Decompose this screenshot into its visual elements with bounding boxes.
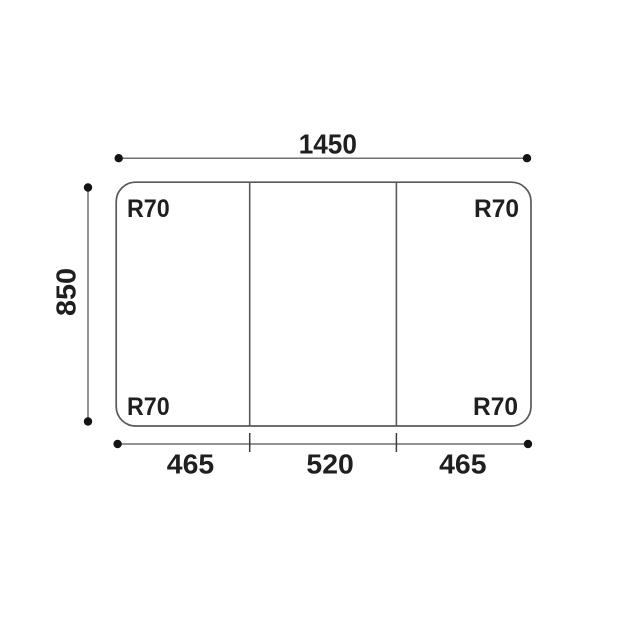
svg-text:465: 465 <box>167 448 214 479</box>
svg-text:465: 465 <box>439 448 486 479</box>
svg-text:R70: R70 <box>474 195 519 223</box>
svg-text:R70: R70 <box>473 393 518 421</box>
svg-text:R70: R70 <box>127 195 170 223</box>
svg-text:1450: 1450 <box>299 129 357 160</box>
svg-text:520: 520 <box>306 448 353 479</box>
svg-text:R70: R70 <box>127 393 170 421</box>
svg-text:850: 850 <box>51 268 82 316</box>
